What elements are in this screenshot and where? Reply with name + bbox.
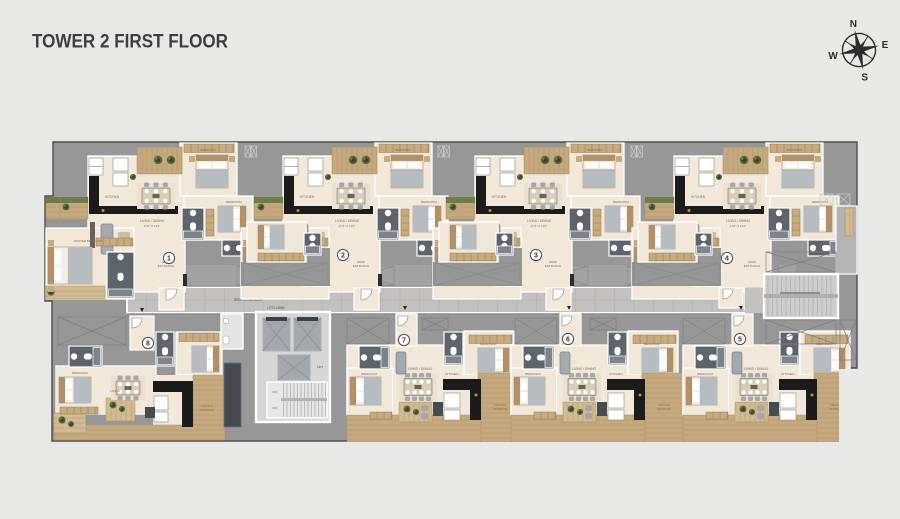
svg-text:TOWER 2 FIRST FLOOR: TOWER 2 FIRST FLOOR bbox=[32, 32, 228, 53]
svg-text:TERRACE: TERRACE bbox=[200, 408, 214, 412]
svg-text:BEDROOM: BEDROOM bbox=[72, 371, 88, 375]
svg-text:W: W bbox=[828, 51, 838, 62]
svg-text:5: 5 bbox=[738, 336, 742, 343]
svg-text:E: E bbox=[882, 40, 889, 51]
svg-text:7: 7 bbox=[402, 337, 406, 344]
svg-text:4: 4 bbox=[725, 255, 729, 262]
svg-text:S: S bbox=[861, 72, 868, 83]
svg-text:LIVING: LIVING bbox=[110, 389, 121, 393]
svg-text:2: 2 bbox=[341, 252, 345, 259]
svg-text:8: 8 bbox=[146, 340, 150, 347]
svg-text:3: 3 bbox=[534, 252, 538, 259]
svg-text:LIFT LOBBY: LIFT LOBBY bbox=[267, 306, 286, 310]
svg-text:LIFT: LIFT bbox=[317, 365, 323, 369]
svg-text:6: 6 bbox=[566, 336, 570, 343]
svg-text:N: N bbox=[850, 19, 857, 30]
svg-text:1: 1 bbox=[167, 255, 171, 262]
